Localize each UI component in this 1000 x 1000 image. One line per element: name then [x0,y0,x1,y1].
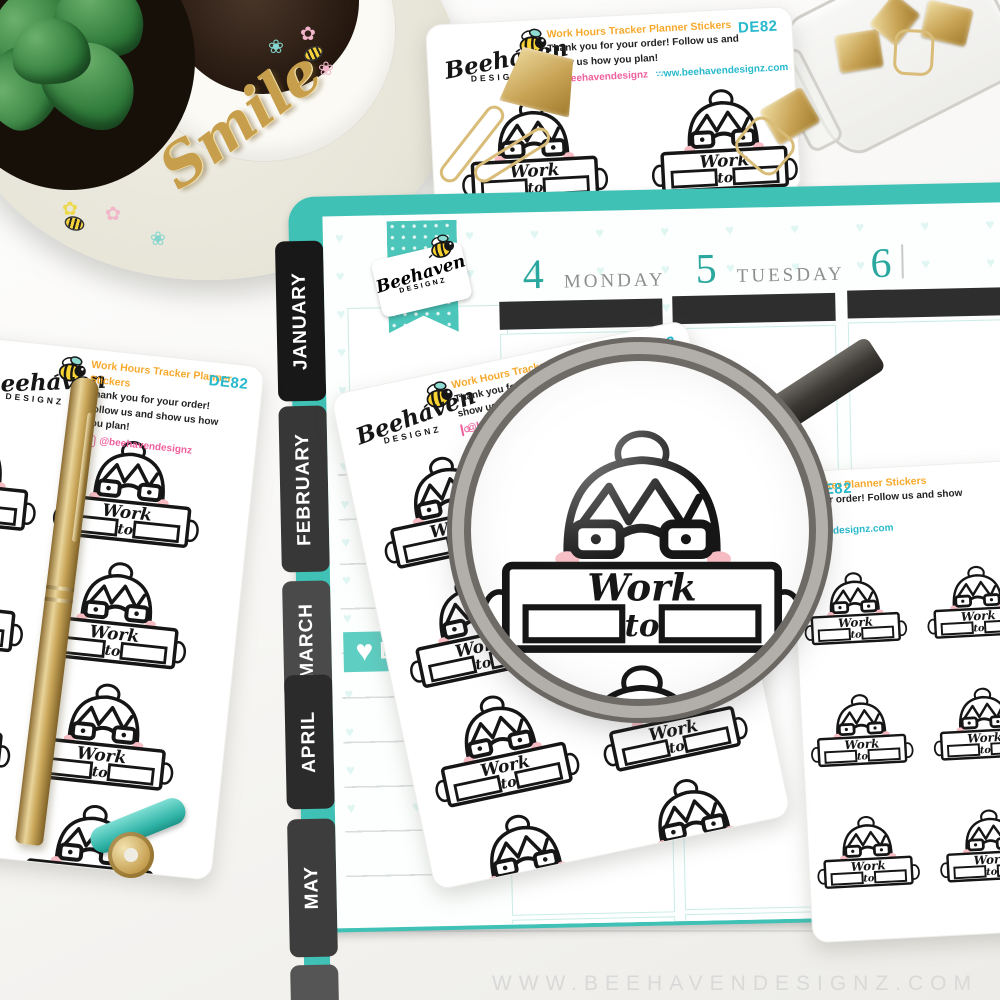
lens-sheen [471,361,809,699]
day-name: MONDAY [564,269,666,293]
magnifying-glass[interactable] [448,338,832,722]
work-tracker-sticker [812,795,923,912]
work-tracker-sticker [0,778,8,881]
day-name: TUESDAY [737,264,845,288]
gold-binder-clip [835,29,884,73]
pen-ring [45,597,73,604]
day-black-bar [847,287,1000,318]
day-black-bar [499,298,663,329]
sheet-header: Beehaven DESIGNZ Work Hours Tracker Plan… [426,7,794,98]
teal-clip-hole [124,848,138,862]
work-tracker-sticker [0,535,34,662]
day-divider [553,256,554,290]
gold-clip-wire [893,28,935,76]
tab-partial[interactable] [290,964,339,1000]
brand-script: Beehaven [374,251,468,297]
brand-logo: Beehaven DESIGNZ [350,385,457,451]
day-black-bar [672,293,836,324]
work-tracker-sticker [922,545,1000,662]
product-code: DE82 [738,18,778,37]
day-number: 5 [695,245,717,293]
tab-april[interactable]: APRIL [284,674,335,809]
sheet-header-text: Work Hours Tracker Planner Stickers Than… [546,16,764,88]
day-header: 5 TUESDAY [671,243,835,290]
flower-icon [300,25,316,44]
tab-january[interactable]: JANUARY [275,241,326,402]
magnifier-lens [464,354,816,706]
day-number: 6 [870,240,892,288]
heart-icon [355,637,373,667]
work-tracker-sticker [929,666,1000,783]
work-tracker-sticker [0,656,21,783]
work-tracker-sticker [935,788,1000,905]
pen-ring [46,585,74,592]
flower-icon [105,205,121,224]
day-divider [726,250,727,284]
flower-icon [150,230,166,249]
product-photo-scene: Smile Beehaven DESIGNZ Work Hours Tracke… [0,0,1000,1000]
day-number: 4 [522,251,544,299]
tab-may[interactable]: MAY [287,818,338,957]
flower-icon [62,200,78,219]
day-header: 6 [846,237,1000,284]
watermark: WWW.BEEHAVENDESIGNZ.COM [492,972,978,996]
work-tracker-sticker [0,414,46,541]
day-header: 4 MONDAY [498,248,662,295]
tab-february[interactable]: FEBRUARY [278,405,329,572]
day-divider [901,244,903,278]
website-icon [652,71,653,81]
